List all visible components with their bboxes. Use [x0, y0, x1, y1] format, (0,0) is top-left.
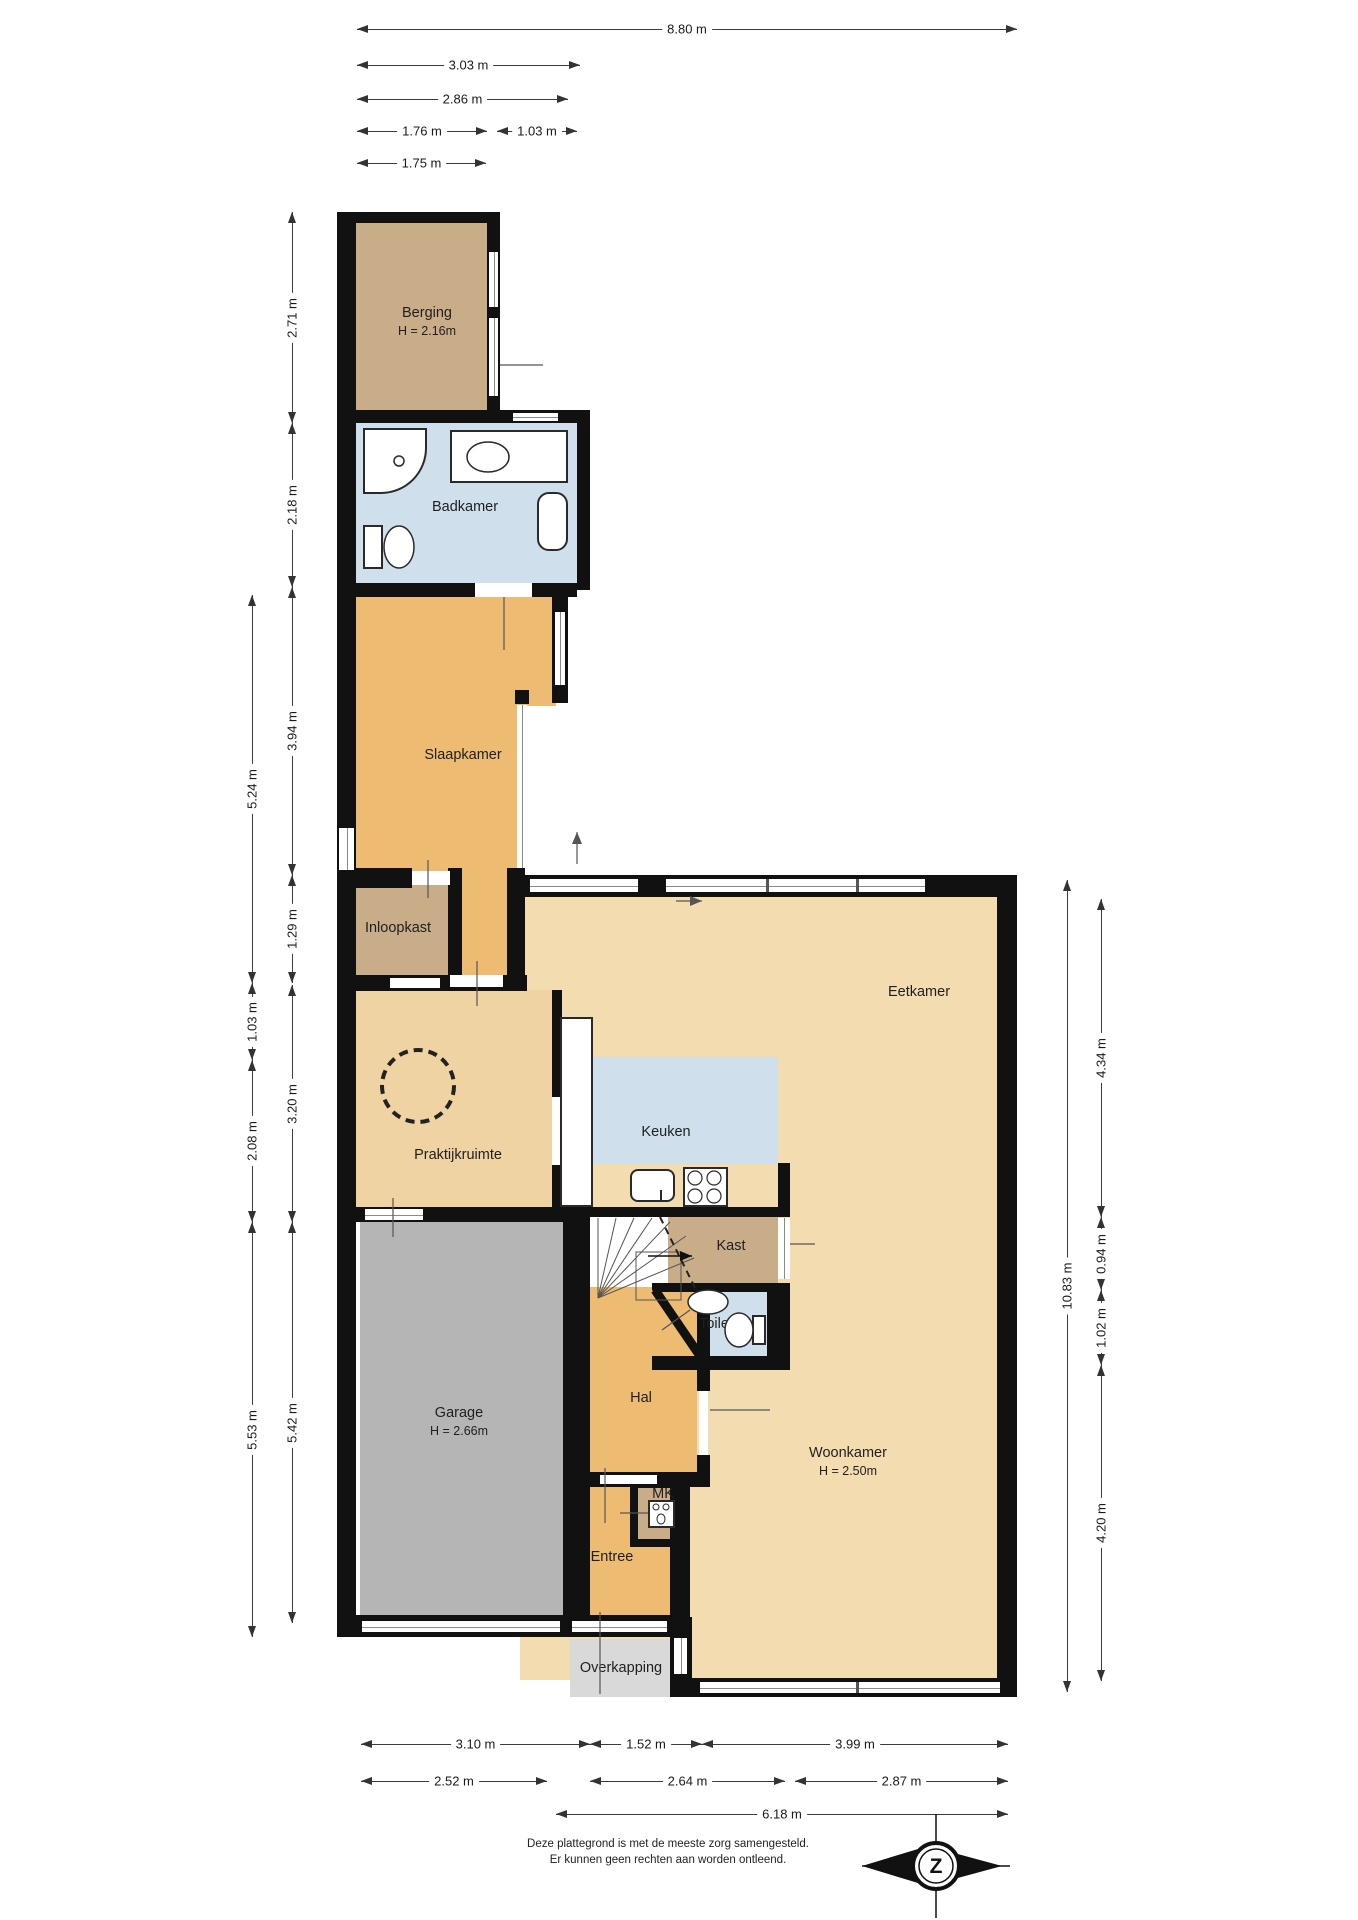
compass-wing-west: [862, 1849, 918, 1883]
wc-toilet-bowl: [725, 1313, 753, 1347]
disclaimer-text: Deze plattegrond is met de meeste zorg s…: [527, 1836, 809, 1868]
slaap-entry-arrow-head: [572, 832, 582, 844]
meter-dial-3: [657, 1514, 665, 1524]
disclaimer-line-1: Deze plattegrond is met de meeste zorg s…: [527, 1836, 809, 1852]
meter-dial-1: [653, 1504, 659, 1510]
praktijk-circle: [382, 1050, 454, 1122]
stove-burner-4: [707, 1189, 721, 1203]
floor-plan-linework: [0, 0, 1358, 1920]
compass-south-label: Z: [930, 1855, 943, 1879]
stair-4: [598, 1218, 652, 1298]
disclaimer-line-2: Er kunnen geen rechten aan worden ontlee…: [527, 1852, 809, 1868]
floor-plan-page: BergingH = 2.16mBadkamerSlaapkamerInloop…: [0, 0, 1358, 1920]
stair-5: [598, 1222, 670, 1298]
toilet-bowl-badkamer: [384, 526, 414, 568]
stair-2: [598, 1218, 616, 1298]
stair-3: [598, 1218, 634, 1298]
shower-drain: [394, 456, 404, 466]
compass-wing-east: [954, 1853, 1002, 1879]
wc-sink: [688, 1290, 728, 1314]
bath-sink: [467, 442, 509, 472]
stove-burner-2: [707, 1171, 721, 1185]
stove-burner-1: [688, 1171, 702, 1185]
meter-dial-2: [663, 1504, 669, 1510]
eet-entry-arrow-head: [690, 896, 702, 906]
stove-burner-3: [688, 1189, 702, 1203]
